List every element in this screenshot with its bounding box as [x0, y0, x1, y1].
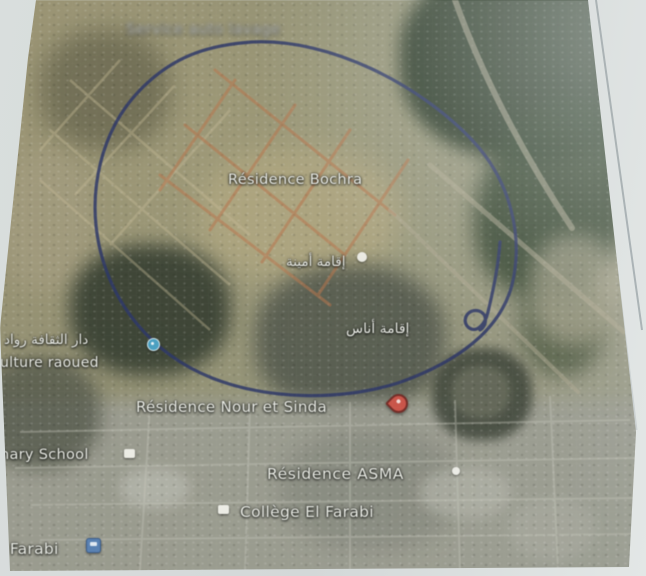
satellite-map: Service auto lavage Résidence Bochra إقا… [0, 0, 646, 576]
photo-of-printed-map: Service auto lavage Résidence Bochra إقا… [0, 0, 646, 576]
photo-glare [0, 0, 646, 576]
